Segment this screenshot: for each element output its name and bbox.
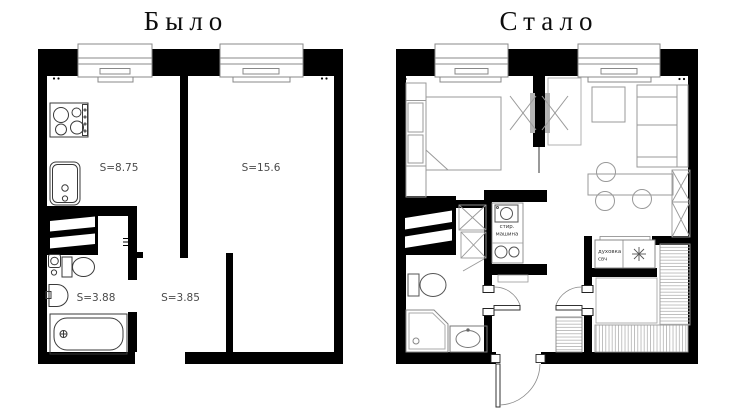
washing-machine-label-line1: стир. — [500, 224, 515, 230]
washing-machine-label-line2: машина — [496, 232, 519, 238]
wall-ticks-before — [123, 239, 128, 246]
kitchen-island — [596, 278, 657, 323]
walls-before — [38, 49, 343, 364]
window-room-before — [220, 44, 303, 82]
toilet-after — [408, 274, 446, 297]
stove — [50, 103, 88, 137]
sofa — [637, 85, 688, 167]
kitchen-area-label: S=8.75 — [100, 162, 139, 174]
bathroom-door — [483, 286, 520, 316]
plan-after: стир. машина духовка свч — [396, 44, 698, 407]
counter-right — [660, 244, 690, 325]
bed — [406, 83, 501, 197]
window-bedroom-after — [435, 44, 508, 82]
floor-plan-drawing: S=8.75 S=15.6 S=3.88 S=3.85 — [0, 0, 736, 414]
living-room-area-label: S=15.6 — [242, 162, 281, 174]
basin-before — [46, 285, 68, 307]
bathroom-area-label: S=3.88 — [77, 292, 116, 304]
oven-block: духовка свч — [595, 237, 655, 269]
toilet-before — [49, 255, 95, 278]
oven-label-line2: свч — [598, 257, 607, 263]
hallway-area-label: S=3.85 — [161, 292, 200, 304]
vent-shaft-after — [401, 205, 456, 255]
side-table — [592, 87, 625, 122]
hallway-closet — [556, 317, 582, 352]
threshold-shelf — [498, 275, 528, 282]
window-kitchen-before — [78, 44, 152, 82]
bathroom-cabinets — [459, 205, 486, 271]
wardrobe-column — [672, 170, 690, 237]
counter-bottom — [595, 325, 688, 352]
kitchen-sink — [50, 162, 80, 205]
bathtub — [50, 314, 127, 354]
entrance-door — [491, 355, 545, 408]
oven-label-line1: духовка — [598, 249, 621, 255]
sliding-partition — [510, 78, 581, 173]
kitchen-door — [556, 286, 593, 316]
dining-table — [588, 163, 673, 211]
window-living-after — [578, 44, 660, 82]
shower — [406, 310, 448, 352]
basin-after — [450, 326, 487, 352]
hood-star-icon — [632, 247, 646, 261]
plan-before: S=8.75 S=15.6 S=3.88 S=3.85 — [38, 44, 343, 364]
floor-plan-comparison: Было Стало — [0, 0, 736, 414]
